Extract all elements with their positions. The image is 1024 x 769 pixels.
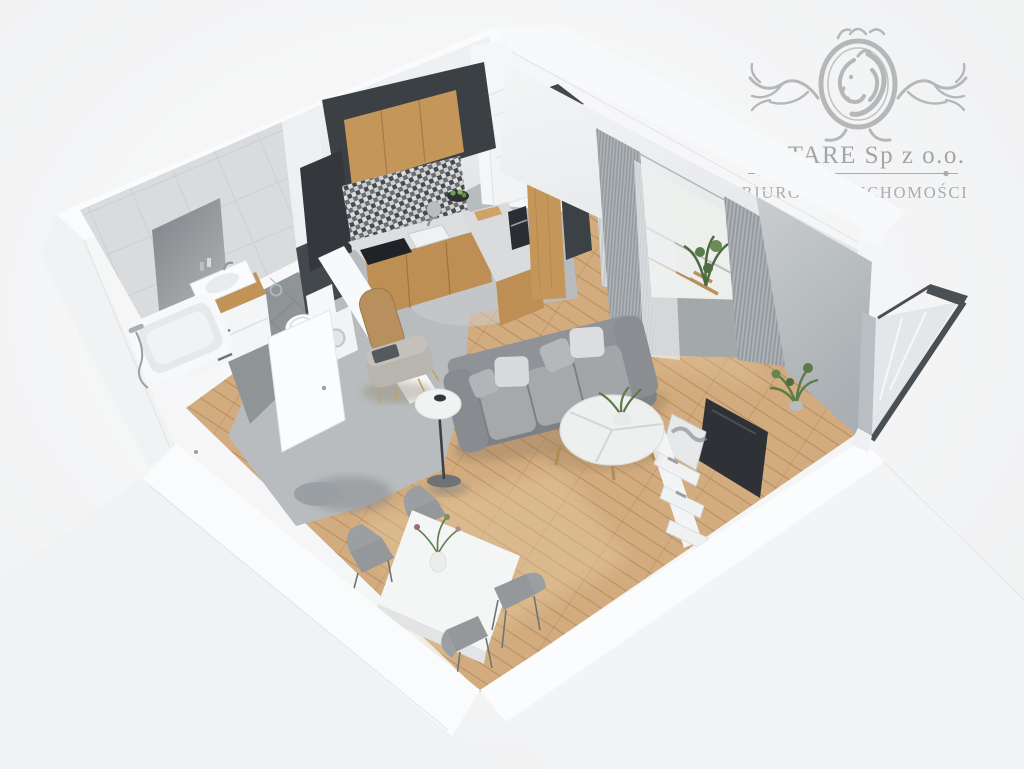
lamp-top-vent <box>434 395 446 402</box>
fruit-3 <box>462 193 467 198</box>
fruit-2 <box>457 189 462 194</box>
kettle <box>427 201 441 217</box>
front-door-hinge <box>194 450 198 454</box>
soap-bottle <box>200 262 204 271</box>
render-canvas: ELITARE Sp z o.o. BIURO NIERUCHOMOŚCI <box>0 0 1024 769</box>
bathroom-door-handle <box>322 386 326 390</box>
fruit <box>450 190 455 195</box>
plant-pot <box>613 412 631 426</box>
pillow-white-2 <box>569 326 605 358</box>
lamp-shade <box>415 389 461 419</box>
soap-bottle-2 <box>207 258 211 267</box>
pillow-white-1 <box>494 356 529 387</box>
floorplan-render: ELITARE Sp z o.o. BIURO NIERUCHOMOŚCI <box>0 0 1024 769</box>
round-rug <box>294 482 342 506</box>
